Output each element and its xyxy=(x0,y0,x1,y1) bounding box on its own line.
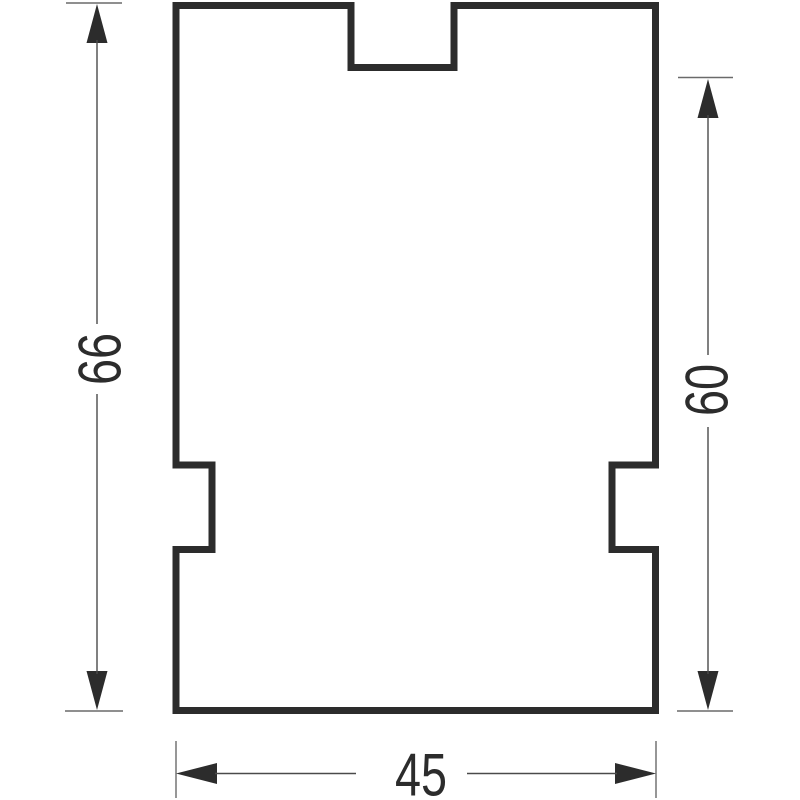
dimension-right-height: 60 xyxy=(674,78,741,712)
dimension-label-60: 60 xyxy=(674,364,741,416)
dimension-left-height: 66 xyxy=(65,3,134,711)
arrow-right-icon xyxy=(615,763,656,784)
dimension-label-66: 66 xyxy=(67,333,134,385)
dimension-bottom-width: 45 xyxy=(176,741,656,800)
arrow-down-icon xyxy=(87,671,108,710)
profile-outline xyxy=(176,6,656,711)
arrow-up-icon xyxy=(87,4,108,43)
technical-drawing: 66 60 45 xyxy=(0,0,800,800)
dimension-label-45: 45 xyxy=(395,742,447,800)
arrow-up-icon xyxy=(698,79,719,118)
drawing-canvas: 66 60 45 xyxy=(0,0,800,800)
arrow-down-icon xyxy=(698,671,719,710)
arrow-left-icon xyxy=(176,763,217,784)
